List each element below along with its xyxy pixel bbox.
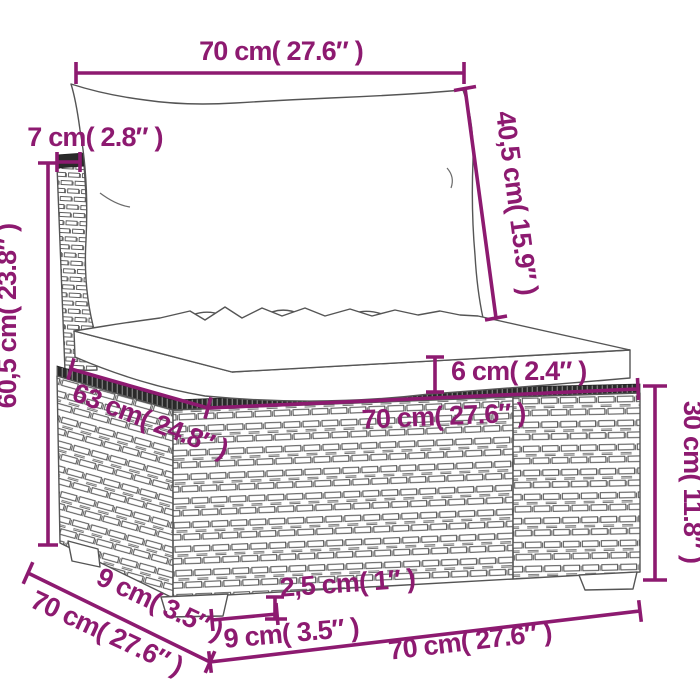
dim-base-height-line [643,386,667,580]
dim-top-width-label: 70 cm( 27.6″ ) [199,36,363,66]
dim-back-thickness-label: 7 cm( 2.8″ ) [27,122,162,152]
dim-bottom-width-label: 70 cm( 27.6″ ) [387,616,553,665]
dim-seat-cushion-thickness-label: 6 cm( 2.4″ ) [451,356,586,386]
dim-total-height-line [38,163,58,545]
dim-total-height-label: 60,5 cm( 23.8″ ) [0,224,22,409]
foot-right [579,572,637,590]
sofa-line-drawing: 70 cm( 27.6″ ) 7 cm( 2.8″ ) 60,5 cm( 23.… [0,0,700,700]
base-right-face [513,393,640,579]
product-dimension-diagram: 70 cm( 27.6″ ) 7 cm( 2.8″ ) 60,5 cm( 23.… [0,0,700,700]
dim-back-cushion-height-label: 40,5 cm( 15.9″ ) [490,109,544,296]
dim-base-height-label: 30 cm( 11.8″ ) [678,401,700,563]
